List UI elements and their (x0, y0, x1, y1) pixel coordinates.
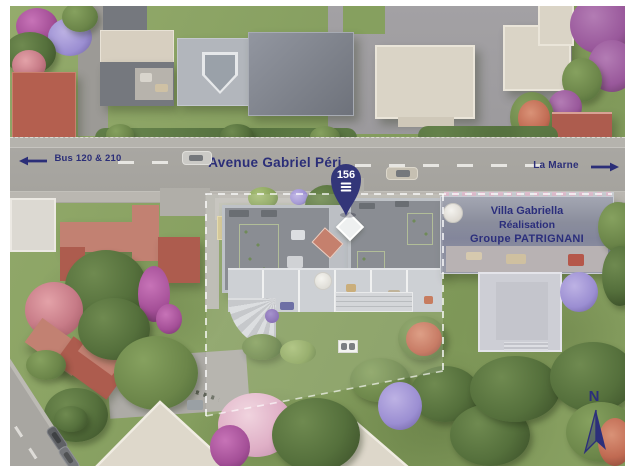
list-icon (341, 183, 351, 192)
patio-furniture (155, 84, 168, 92)
bush (54, 406, 88, 432)
patio-furniture (506, 254, 526, 264)
neighbor-house-roof (103, 6, 147, 32)
green-roof-garden (357, 251, 385, 269)
flowering-bush (560, 272, 598, 312)
map-canvas: Bus 120 & 210 Avenue Gabriel Péri La Mar… (10, 6, 625, 466)
neighbor-driveway (160, 188, 210, 216)
parasol (314, 272, 332, 290)
bus-direction-arrow (18, 156, 48, 166)
neighbor-house-roof (100, 30, 174, 64)
garden-furniture (187, 400, 203, 410)
patio-furniture (568, 254, 584, 266)
arrow-left-icon (18, 156, 48, 166)
flowering-bush (156, 304, 182, 334)
panel-cell (349, 343, 355, 350)
entry-steps (504, 342, 548, 351)
patio-furniture (140, 73, 152, 82)
lawn-patch (343, 6, 385, 34)
skylight (287, 256, 303, 268)
bush (242, 334, 282, 360)
villa-lower-roof-section (496, 282, 548, 340)
project-label-line3: Groupe PATRIGNANI (440, 232, 614, 246)
car (182, 151, 212, 165)
patio-furniture (280, 302, 294, 310)
neighbor-house-roof (10, 198, 56, 252)
neighbor-house-roof (375, 45, 475, 119)
pin-number: 156 (337, 169, 355, 181)
tree (272, 398, 360, 466)
tree (470, 356, 560, 422)
rooftop-vent (229, 210, 249, 217)
patio-furniture (466, 252, 482, 260)
project-label: Villa Gabriella Réalisation Groupe PATRI… (440, 204, 614, 246)
north-arrow-icon (570, 408, 618, 464)
north-indicator: N (570, 388, 618, 466)
panel-cell (341, 343, 347, 350)
compass-label: N (570, 388, 618, 405)
roof-terrace (135, 68, 173, 100)
tree (114, 336, 198, 410)
flowering-bush (378, 382, 422, 430)
balcony (335, 292, 413, 312)
site-plan-image: Bus 120 & 210 Avenue Gabriel Péri La Mar… (0, 0, 640, 470)
location-marker[interactable]: 156 (324, 160, 368, 218)
solar-panel (338, 340, 358, 353)
project-label-line2: Réalisation (440, 218, 614, 232)
rooftop-vent (395, 201, 409, 207)
rooftop-vent (261, 210, 277, 217)
bus-route-label: Bus 120 & 210 (48, 153, 128, 164)
villa-lower-building (478, 272, 562, 352)
arrow-right-icon (590, 162, 620, 172)
car (386, 167, 418, 180)
destination-arrow (590, 162, 620, 172)
bush (26, 350, 66, 380)
neighbor-house-roof (12, 72, 76, 144)
sidewalk-north (10, 137, 625, 147)
flowering-tree (406, 322, 442, 356)
parasol (265, 309, 279, 323)
villa-terrace (446, 246, 608, 272)
patio-furniture (346, 284, 356, 292)
neighbor-house-roof (538, 6, 574, 46)
neighbor-house-roof (132, 205, 159, 261)
project-label-line1: Villa Gabriella (440, 204, 614, 218)
bush (280, 340, 316, 364)
neighbor-house-roof (248, 32, 354, 116)
destination-label: La Marne (518, 160, 594, 171)
skylight (291, 230, 305, 240)
green-roof-garden (407, 213, 433, 245)
patio-furniture (424, 296, 433, 304)
flowering-bush (210, 425, 250, 466)
